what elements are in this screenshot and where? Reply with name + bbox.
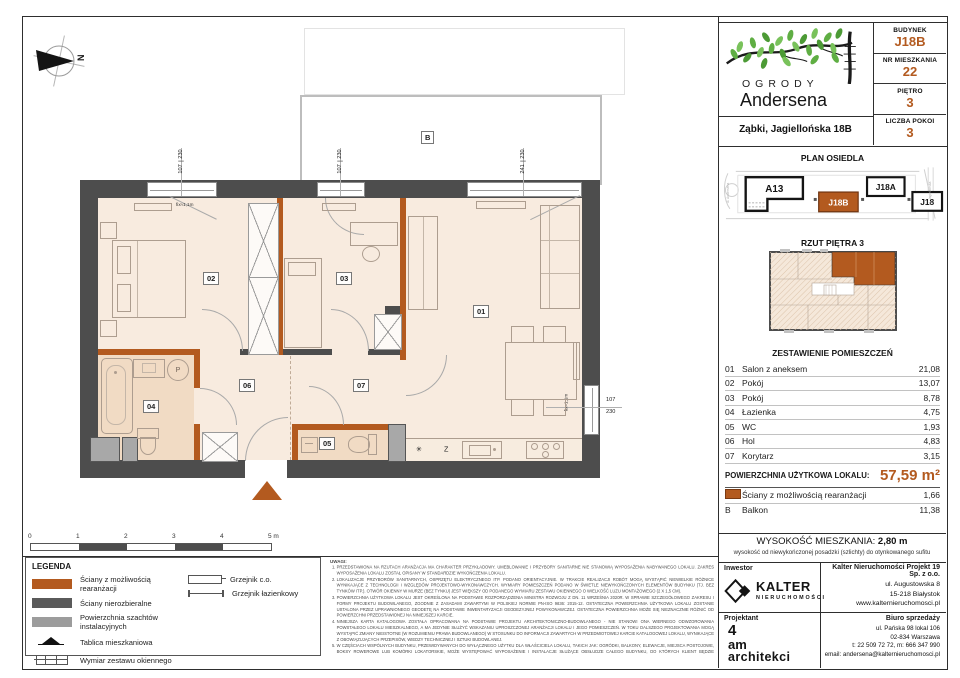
- room-no: 05: [725, 422, 742, 432]
- wardrobe: [374, 314, 402, 350]
- entrance-arrow-icon: [252, 481, 282, 500]
- room-area: 13,07: [919, 378, 940, 388]
- room-area: 1,93: [923, 422, 940, 432]
- room-name: Pokój: [742, 393, 923, 403]
- site-plan-title: PLAN OSIEDLA: [718, 153, 947, 163]
- bathtub: [101, 358, 133, 434]
- company-line: 15-218 Białystok: [824, 590, 940, 600]
- table-row: 07Korytarz3,15: [725, 449, 940, 464]
- kalter-brand-sub: NIERUCHOMOŚCI: [756, 595, 826, 601]
- floor-overview-map: [768, 249, 898, 333]
- street-left-label: ul. Andersena: [726, 183, 730, 204]
- room-area: 4,75: [923, 407, 940, 417]
- nightstand: [100, 320, 117, 337]
- company-line: www.kalternieruchomosci.pl: [824, 599, 940, 609]
- balcony-area-row: B Balkon 11,38: [725, 504, 940, 518]
- floor-overview-title: RZUT PIĘTRA 3: [718, 238, 947, 248]
- info-value: J18B: [894, 34, 925, 49]
- scale-tick-label: 0: [28, 533, 32, 540]
- designer-label: Projektant: [724, 615, 758, 622]
- room-label-04: 04: [143, 400, 159, 413]
- reconfigurable-wall-swatch: [32, 579, 72, 589]
- radiator: [573, 342, 580, 380]
- designer-line: 4: [728, 623, 790, 638]
- installation-shaft: [90, 437, 120, 462]
- info-liczba-pokoi: LICZBA POKOI 3: [874, 115, 946, 145]
- reconfigurable-wall: [194, 424, 200, 460]
- floor-plan: N B 107230 107230 241230: [0, 0, 720, 555]
- radiator: [134, 203, 172, 211]
- room-label-06: 06: [239, 379, 255, 392]
- sidebar: OGRODY Andersena Ząbki, Jagiellońska 18B…: [718, 0, 947, 555]
- bed: [284, 258, 322, 348]
- legend-item-label: Ściany nierozbieralne: [80, 599, 152, 608]
- room-label-07: 07: [353, 379, 369, 392]
- walls-area: 1,66: [923, 490, 940, 500]
- entrance-opening: [245, 460, 287, 478]
- legend-item-label: Grzejnik c.o.: [230, 575, 272, 584]
- apartment-height: WYSOKOŚĆ MIESZKANIA: 2,80 m wysokość od …: [718, 536, 946, 556]
- info-value: 3: [906, 95, 913, 110]
- installation-shaft: [388, 424, 406, 462]
- walls-swatch: [725, 489, 742, 501]
- table-row: 05WC1,93: [725, 420, 940, 435]
- table-row: 02Pokój13,07: [725, 377, 940, 392]
- investor-label: Inwestor: [724, 565, 753, 572]
- total-area-row: POWIERZCHNIA UŻYTKOWA LOKALU: 57,59 m²: [725, 464, 940, 488]
- toilet: [368, 434, 377, 455]
- room-no: 04: [725, 407, 742, 417]
- building-a13-label: A13: [765, 184, 784, 195]
- room-name: Korytarz: [742, 451, 923, 461]
- legend-panel: LEGENDA Ściany z możliwością rearanżacji…: [25, 557, 321, 656]
- room-area: 4,83: [923, 436, 940, 446]
- kalter-logo-icon: [724, 578, 752, 604]
- brand-top: OGRODY: [742, 78, 819, 90]
- window-dimension: 107230: [178, 146, 184, 176]
- walls-area-row: Ściany z możliwością rearanżacji 1,66: [725, 488, 940, 504]
- window-dimension: 107: [606, 397, 615, 403]
- legend-item: Grzejnik łazienkowy: [188, 589, 316, 598]
- note-item: PRZEDSTAWIONA NA RZUTACH ARANŻACJA MA CH…: [337, 565, 714, 577]
- wardrobe: [248, 203, 279, 279]
- investor-cell: Inwestor KALTER NIERUCHOMOŚCI: [718, 562, 820, 612]
- tree-branch-logo-icon: [724, 26, 866, 84]
- wardrobe: [248, 277, 279, 355]
- desk: [350, 222, 398, 246]
- room-name: Salon z aneksem: [742, 364, 919, 374]
- apartment-sign-icon: [32, 636, 72, 648]
- room-label-01: 01: [473, 305, 489, 318]
- legend-item: Grzejnik c.o.: [188, 575, 316, 584]
- legend-item-label: Grzejnik łazienkowy: [232, 589, 298, 598]
- legend-item-label: Wymiar zestawu okiennego: [80, 656, 172, 665]
- chair: [511, 326, 534, 343]
- toilet-bowl: [140, 437, 156, 455]
- site-plan-map: A13 J18B J18A J18 ul. Andersena ul. Jagi…: [722, 163, 944, 227]
- info-nr-mieszkania: NR MIESZKANIA 22: [874, 54, 946, 85]
- project-address: Ząbki, Jagiellońska 18B: [718, 124, 873, 135]
- room-label-03: 03: [336, 272, 352, 285]
- scale-tick-label: 1: [76, 533, 80, 540]
- room-name: Hol: [742, 436, 923, 446]
- washing-machine: P: [167, 359, 189, 381]
- legend-item-label: Powierzchnia szachtów instalacyjnych: [80, 613, 182, 631]
- table-row: 01Salon z aneksem21,08: [725, 362, 940, 377]
- brand-bottom: Andersena: [740, 90, 827, 111]
- radiator: [476, 201, 526, 209]
- nightstand: [100, 222, 117, 239]
- note-item: NINIEJSZA KARTA KATALOGOWA ZOSTAŁA OPRAC…: [337, 620, 714, 644]
- bathroom-sink: [133, 359, 165, 378]
- room-area: 3,15: [923, 451, 940, 461]
- room-boundary-dashed: [290, 356, 291, 460]
- scale-bar: 0 1 2 3 4 5 m: [30, 533, 290, 553]
- fix-window-label: fix≈1,1m: [176, 202, 194, 207]
- room-no: 02: [725, 378, 742, 388]
- room-no: 01: [725, 364, 742, 374]
- wall: [80, 198, 98, 460]
- fixed-wall-swatch: [32, 598, 72, 608]
- note-item: POWIERZCHNIA UŻYTKOWA LOKALU JEST OKREŚL…: [337, 596, 714, 620]
- balcony-name: Balkon: [742, 505, 919, 515]
- notes-panel: UWAGI: PRZEDSTAWIONA NA RZUTACH ARANŻACJ…: [330, 559, 716, 655]
- legend-item-label: Ściany z możliwością rearanżacji: [80, 575, 182, 593]
- height-value: 2,80 m: [878, 536, 908, 547]
- notes-title: UWAGI:: [330, 559, 714, 564]
- total-area-value: 57,59 m²: [880, 467, 940, 484]
- info-value: 22: [903, 64, 917, 79]
- legend-title: LEGENDA: [32, 562, 71, 571]
- balcony-label: B: [421, 131, 434, 144]
- room-area: 8,78: [923, 393, 940, 403]
- installation-shaft: [122, 437, 138, 462]
- kalter-brand: KALTER: [756, 579, 826, 594]
- window-dimension: 107230: [337, 146, 343, 176]
- sales-office-line: 02-834 Warszawa: [818, 634, 940, 643]
- rooms-table-title: ZESTAWIENIE POMIESZCZEŃ: [725, 348, 940, 358]
- toilet-bowl: [348, 436, 370, 453]
- legend-item: Ściany nierozbieralne: [32, 598, 182, 608]
- designer-line: architekci: [728, 651, 790, 664]
- window: [584, 385, 599, 435]
- window-dimension: 241230: [520, 146, 526, 176]
- room-no: 03: [725, 393, 742, 403]
- company-line: ul. Augustowska 8: [824, 580, 940, 590]
- height-note: wysokość od niewykończonej posadzki (szl…: [718, 549, 946, 556]
- table-row: 04Łazienka4,75: [725, 406, 940, 421]
- contacts-divider: [718, 533, 946, 534]
- scale-tick-label: 3: [172, 533, 176, 540]
- scale-tick-label: 5 m: [268, 533, 279, 540]
- sofa: [540, 205, 580, 309]
- walls-label: Ściany z możliwością rearanżacji: [742, 490, 923, 500]
- info-label: PIĘTRO: [897, 88, 922, 95]
- shaft-swatch: [32, 617, 72, 627]
- apartment-card-page: N B 107230 107230 241230: [0, 0, 960, 678]
- window-dimension-icon: [32, 653, 72, 667]
- neighbour-outline: [304, 28, 625, 95]
- info-label: BUDYNEK: [893, 27, 927, 34]
- room-name: Łazienka: [742, 407, 923, 417]
- info-pietro: PIĘTRO 3: [874, 84, 946, 115]
- company-name: Kalter Nieruchomości Projekt 19 Sp. z o.…: [824, 564, 940, 578]
- unit-info: BUDYNEK J18B NR MIESZKANIA 22 PIĘTRO 3 L…: [874, 23, 946, 144]
- dining-table: [505, 342, 577, 400]
- title-block-divider: [718, 116, 873, 117]
- table-row: 06Hol4,83: [725, 435, 940, 450]
- info-label: NR MIESZKANIA: [883, 57, 937, 64]
- info-budynek: BUDYNEK J18B: [874, 23, 946, 54]
- chair: [543, 326, 566, 343]
- height-label: WYSOKOŚĆ MIESZKANIA:: [757, 536, 876, 547]
- legend-item: Tablica mieszkaniowa: [32, 636, 182, 648]
- wc-sink: [301, 437, 318, 453]
- radiator-co-icon: [188, 575, 222, 584]
- chair: [511, 399, 534, 416]
- info-value: 3: [906, 125, 913, 140]
- total-area-label: POWIERZCHNIA UŻYTKOWA LOKALU:: [725, 471, 870, 480]
- rooms-table: ZESTAWIENIE POMIESZCZEŃ 01Salon z anekse…: [725, 348, 940, 517]
- sales-office-cell: Biuro sprzedaży ul. Pańska 98 lokal 106 …: [818, 615, 940, 660]
- legend-item: Powierzchnia szachtów instalacyjnych: [32, 613, 182, 631]
- room-no: 07: [725, 451, 742, 461]
- wardrobe: [202, 432, 238, 462]
- chair: [362, 246, 380, 262]
- info-label: LICZBA POKOI: [886, 118, 935, 125]
- chair: [543, 399, 566, 416]
- reconfigurable-wall: [98, 349, 200, 355]
- building-j18b-label: J18B: [828, 197, 848, 207]
- window-dimension: 230: [606, 409, 615, 415]
- room-no: 06: [725, 436, 742, 446]
- hob: [526, 441, 564, 459]
- balcony: [300, 95, 602, 185]
- balcony-no: B: [725, 505, 742, 515]
- dishwasher-symbol: Z: [444, 445, 448, 453]
- north-label: N: [76, 55, 86, 62]
- window: [467, 182, 582, 197]
- radiator-bathroom-icon: [188, 590, 224, 597]
- note-item: LOKALIZACJE PRZYBORÓW SANITARNYCH, OSPRZ…: [337, 577, 714, 595]
- room-name: WC: [742, 422, 923, 432]
- radiator: [322, 203, 356, 211]
- street-right-label: ul. Jagiellońska: [928, 181, 932, 204]
- legend-item-label: Tablica mieszkaniowa: [80, 638, 153, 647]
- scale-tick-label: 2: [124, 533, 128, 540]
- leaves: [729, 27, 844, 69]
- window: [147, 182, 217, 197]
- cabinet: [408, 216, 438, 310]
- fridge-symbol: ✳: [416, 445, 422, 454]
- table-row: 03Pokój8,78: [725, 391, 940, 406]
- balcony-area: 11,38: [919, 505, 940, 515]
- company-cell: Kalter Nieruchomości Projekt 19 Sp. z o.…: [824, 564, 940, 609]
- room-name: Pokój: [742, 378, 919, 388]
- note-item: W CZĘŚCIACH WSPÓLNYCH BUDYNKU, PRZEWIDYW…: [337, 644, 714, 655]
- reconfigurable-wall: [194, 355, 200, 388]
- kitchen-sink: [462, 441, 502, 459]
- sales-office-line: email: andersena@kalternieruchomosci.pl: [818, 651, 940, 660]
- legend-item: Wymiar zestawu okiennego: [32, 653, 182, 667]
- washing-machine-label: P: [176, 367, 181, 374]
- bed: [112, 240, 186, 318]
- designer-cell: Projektant 4 am architekci: [718, 612, 820, 662]
- legend-item: Ściany z możliwością rearanżacji: [32, 575, 182, 593]
- building-j18a-label: J18A: [876, 182, 896, 192]
- sales-office-label: Biuro sprzedaży: [818, 615, 940, 622]
- room-label-05: 05: [319, 437, 335, 450]
- room-area: 21,08: [919, 364, 940, 374]
- room-label-02: 02: [203, 272, 219, 285]
- sales-office-line: t: 22 509 72 72, m: 666 347 990: [818, 642, 940, 651]
- window: [317, 182, 365, 197]
- compass-icon: N: [28, 30, 92, 94]
- sales-office-line: ul. Pańska 98 lokal 106: [818, 625, 940, 634]
- reconfigurable-wall: [292, 430, 298, 460]
- wall: [80, 460, 600, 478]
- scale-tick-label: 4: [220, 533, 224, 540]
